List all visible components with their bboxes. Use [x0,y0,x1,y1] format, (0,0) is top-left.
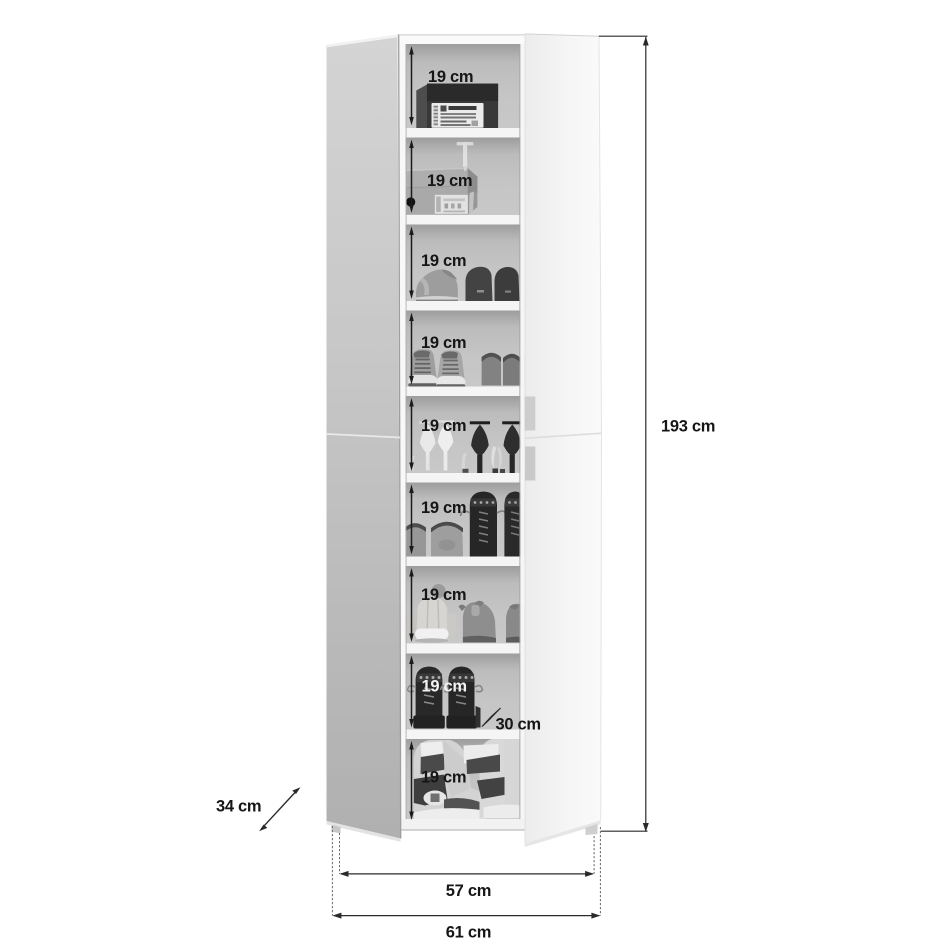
svg-text:19 cm: 19 cm [421,252,466,270]
svg-text:19 cm: 19 cm [421,586,466,604]
svg-text:19 cm: 19 cm [427,172,472,190]
svg-text:19 cm: 19 cm [422,678,467,696]
svg-text:19 cm: 19 cm [421,417,466,435]
svg-text:30 cm: 30 cm [496,716,541,734]
svg-text:34 cm: 34 cm [216,798,261,816]
svg-text:193 cm: 193 cm [661,418,715,436]
svg-text:57 cm: 57 cm [446,882,491,900]
svg-text:61 cm: 61 cm [446,924,491,941]
svg-text:19 cm: 19 cm [421,499,466,517]
svg-text:19 cm: 19 cm [428,68,473,86]
svg-text:19 cm: 19 cm [421,769,466,787]
svg-text:19 cm: 19 cm [421,334,466,352]
